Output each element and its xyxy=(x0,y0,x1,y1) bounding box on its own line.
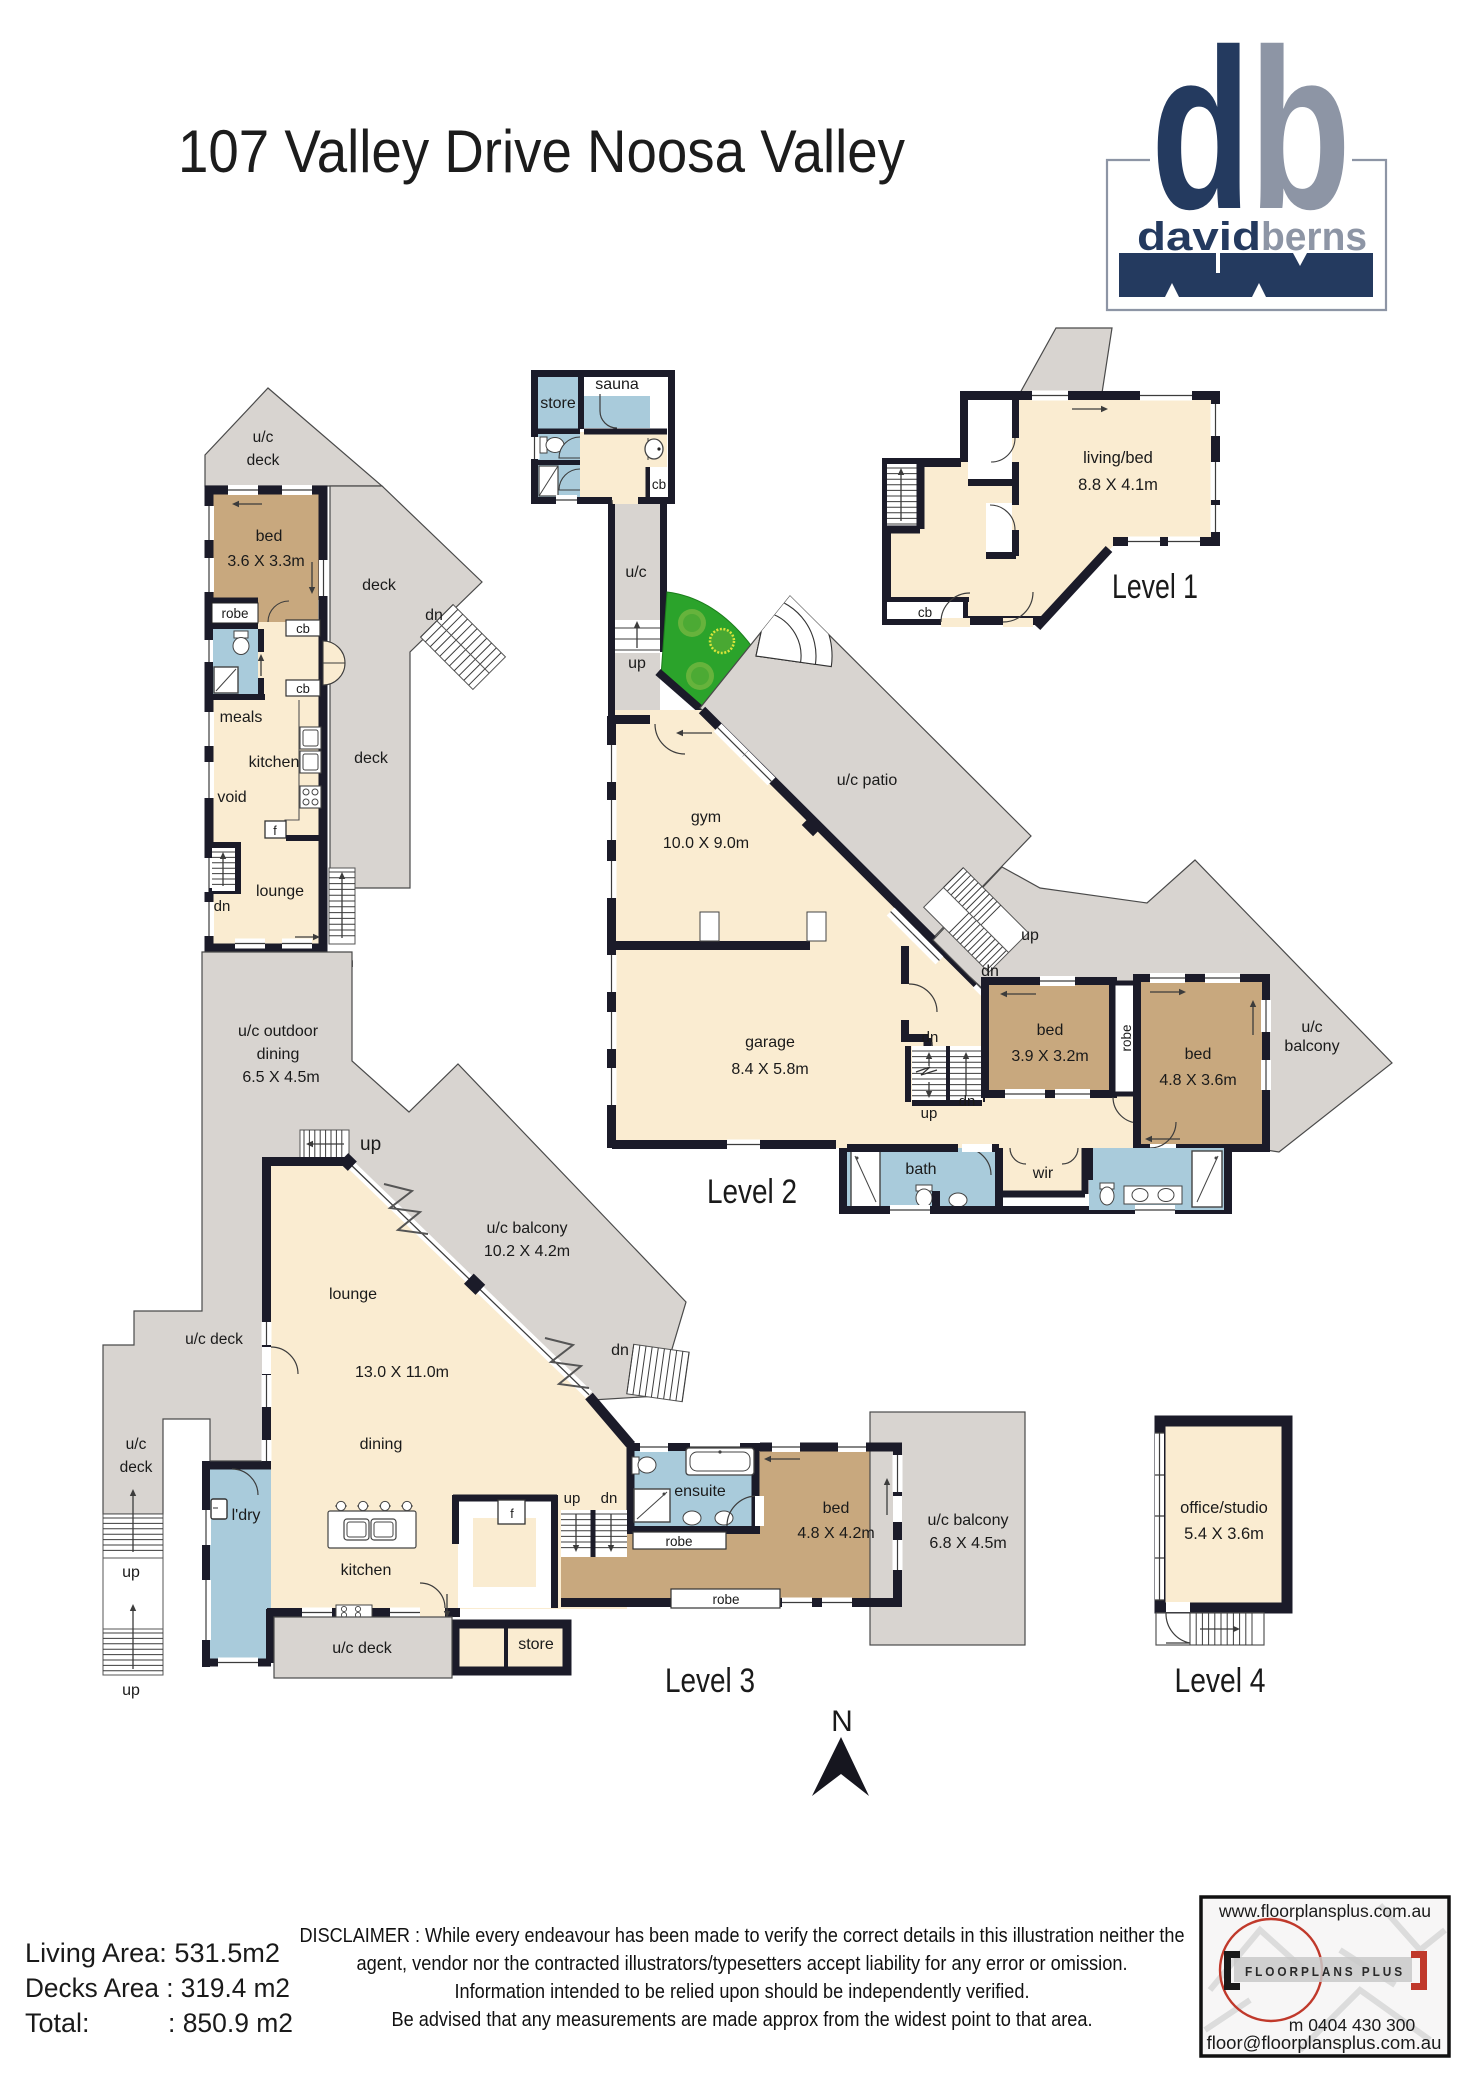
svg-text:berns: berns xyxy=(1261,215,1367,259)
svg-text:agent, vendor nor the contract: agent, vendor nor the contracted illustr… xyxy=(357,1953,1128,1975)
svg-text:deck: deck xyxy=(247,452,280,469)
svg-text:deck: deck xyxy=(120,1459,153,1476)
svg-text:bath: bath xyxy=(905,1161,936,1178)
svg-text:office/studio: office/studio xyxy=(1180,1499,1268,1517)
svg-text:gym: gym xyxy=(691,809,721,826)
svg-text:Decks Area : 319.4 m2: Decks Area : 319.4 m2 xyxy=(25,1973,290,2003)
svg-text:kitchen: kitchen xyxy=(249,754,300,771)
svg-text:dining: dining xyxy=(257,1046,300,1063)
svg-text:dn: dn xyxy=(425,607,443,624)
svg-text:u/c balcony: u/c balcony xyxy=(487,1220,568,1237)
svg-text:lounge: lounge xyxy=(329,1286,377,1303)
svg-text:Living Area: 531.5m2: Living Area: 531.5m2 xyxy=(25,1938,280,1968)
svg-text:bed: bed xyxy=(823,1500,850,1517)
svg-text:f: f xyxy=(510,1507,514,1521)
svg-text:u/c: u/c xyxy=(126,1436,147,1453)
svg-text:ensuite: ensuite xyxy=(674,1483,726,1500)
svg-text:meals: meals xyxy=(220,709,263,726)
svg-text:dining: dining xyxy=(360,1436,403,1453)
svg-text:dn: dn xyxy=(922,1029,939,1046)
svg-text:up: up xyxy=(360,1134,381,1155)
svg-text:bed: bed xyxy=(256,528,283,545)
svg-text:up: up xyxy=(122,1564,140,1581)
svg-text:cb: cb xyxy=(918,605,932,620)
svg-text:deck: deck xyxy=(354,750,389,767)
svg-text:f: f xyxy=(273,824,277,838)
svg-text:deck: deck xyxy=(362,577,397,594)
svg-text:bed: bed xyxy=(1185,1046,1212,1063)
svg-text:8.4 X 5.8m: 8.4 X 5.8m xyxy=(731,1061,808,1078)
svg-text:u/c: u/c xyxy=(1301,1019,1322,1036)
svg-text:8.8 X 4.1m: 8.8 X 4.1m xyxy=(1078,476,1158,494)
svg-text:dn: dn xyxy=(601,1490,618,1507)
svg-text:dn: dn xyxy=(214,898,231,915)
svg-text:Level 4: Level 4 xyxy=(1175,1662,1266,1700)
svg-text:Be advised that any measuremen: Be advised that any measurements are mad… xyxy=(392,2009,1093,2031)
svg-text:Level 1: Level 1 xyxy=(1112,568,1198,606)
svg-text:3.6 X 3.3m: 3.6 X 3.3m xyxy=(227,553,304,570)
svg-text:garage: garage xyxy=(745,1034,795,1051)
svg-text:lounge: lounge xyxy=(256,883,304,900)
svg-text:bed: bed xyxy=(1037,1022,1064,1039)
svg-text:: 850.9 m2: : 850.9 m2 xyxy=(168,2008,293,2038)
svg-text:void: void xyxy=(217,789,246,806)
svg-text:store: store xyxy=(518,1636,554,1653)
svg-text:3.9 X 3.2m: 3.9 X 3.2m xyxy=(1011,1048,1088,1065)
svg-text:floor@floorplansplus.com.au: floor@floorplansplus.com.au xyxy=(1207,2032,1442,2053)
svg-text:kitchen: kitchen xyxy=(341,1562,392,1579)
svg-text:cb: cb xyxy=(296,681,310,696)
svg-text:u/c: u/c xyxy=(253,429,274,446)
svg-text:www.floorplansplus.com.au: www.floorplansplus.com.au xyxy=(1218,1901,1431,1921)
svg-text:10.0 X 9.0m: 10.0 X 9.0m xyxy=(663,835,749,852)
svg-text:sauna: sauna xyxy=(595,376,639,393)
svg-text:107 Valley Drive Noosa Valley: 107 Valley Drive Noosa Valley xyxy=(178,118,905,185)
svg-text:wir: wir xyxy=(1032,1165,1054,1182)
svg-text:robe: robe xyxy=(1119,1024,1134,1051)
svg-text:balcony: balcony xyxy=(1284,1038,1339,1055)
svg-text:living/bed: living/bed xyxy=(1083,449,1153,467)
svg-text:Information intended to be rel: Information intended to be relied upon s… xyxy=(455,1981,1030,2003)
svg-text:up: up xyxy=(564,1490,581,1507)
svg-text:up: up xyxy=(1021,927,1039,944)
svg-text:5.4 X 3.6m: 5.4 X 3.6m xyxy=(1184,1525,1264,1543)
svg-text:dn: dn xyxy=(611,1342,629,1359)
svg-text:6.8 X 4.5m: 6.8 X 4.5m xyxy=(929,1535,1006,1552)
svg-text:u/c balcony: u/c balcony xyxy=(928,1512,1009,1529)
svg-text:Level 3: Level 3 xyxy=(665,1662,755,1700)
svg-text:cb: cb xyxy=(652,477,666,492)
svg-text:u/c patio: u/c patio xyxy=(837,772,898,789)
svg-text:13.0 X 11.0m: 13.0 X 11.0m xyxy=(355,1364,449,1381)
svg-text:robe: robe xyxy=(712,1592,739,1607)
svg-text:4.8 X 3.6m: 4.8 X 3.6m xyxy=(1159,1072,1236,1089)
svg-text:l'dry: l'dry xyxy=(232,1507,261,1524)
svg-text:robe: robe xyxy=(221,606,248,621)
svg-text:dn: dn xyxy=(959,1093,976,1110)
svg-text:Level 2: Level 2 xyxy=(707,1173,797,1211)
svg-text:N: N xyxy=(831,1705,853,1738)
svg-text:DISCLAIMER : While every endea: DISCLAIMER : While every endeavour has b… xyxy=(300,1925,1185,1947)
svg-text:cb: cb xyxy=(296,621,310,636)
svg-text:6.5 X 4.5m: 6.5 X 4.5m xyxy=(242,1069,319,1086)
svg-text:up: up xyxy=(122,1682,140,1699)
svg-text:FLOORPLANS PLUS: FLOORPLANS PLUS xyxy=(1245,1964,1405,1979)
svg-text:store: store xyxy=(540,395,576,412)
svg-text:4.8 X 4.2m: 4.8 X 4.2m xyxy=(797,1525,874,1542)
svg-text:u/c deck: u/c deck xyxy=(185,1331,243,1348)
svg-text:u/c: u/c xyxy=(625,564,646,581)
svg-text:u/c outdoor: u/c outdoor xyxy=(238,1023,319,1040)
svg-text:david: david xyxy=(1137,215,1261,259)
svg-text:robe: robe xyxy=(665,1534,692,1549)
svg-text:10.2 X 4.2m: 10.2 X 4.2m xyxy=(484,1243,570,1260)
svg-text:up: up xyxy=(921,1105,938,1122)
svg-text:up: up xyxy=(628,655,646,672)
svg-text:Total:: Total: xyxy=(25,2008,90,2038)
svg-text:u/c deck: u/c deck xyxy=(332,1640,393,1657)
